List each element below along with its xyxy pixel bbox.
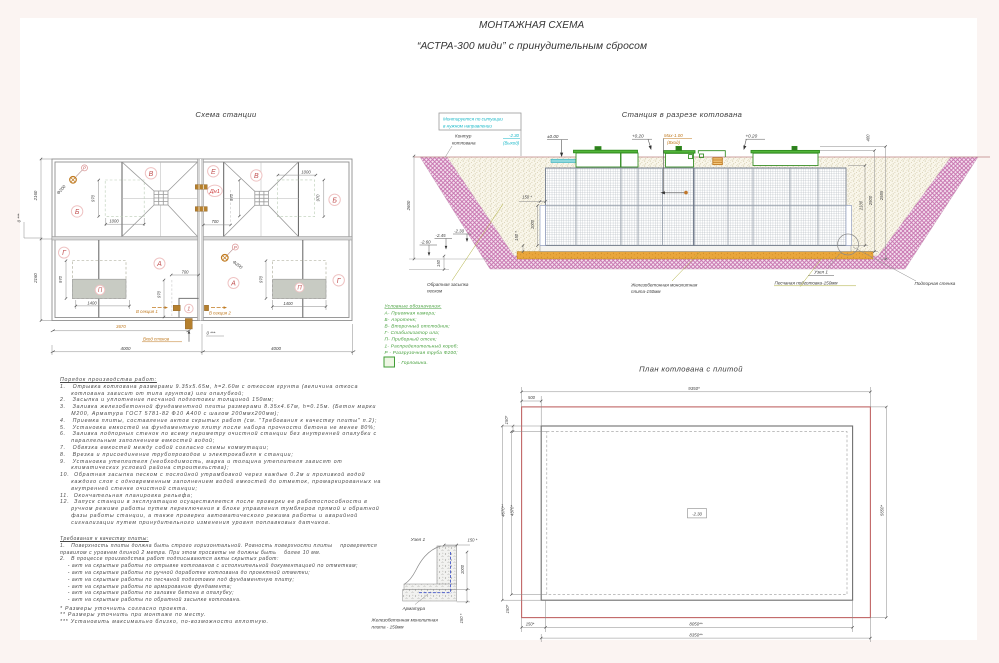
svg-text:Схема станции: Схема станции: [195, 110, 257, 119]
svg-text:Узел 1: Узел 1: [814, 270, 828, 275]
svg-text:Обратная засыпка: Обратная засыпка: [427, 282, 469, 287]
svg-text:Арматура: Арматура: [402, 606, 426, 611]
svg-text:0 ***: 0 ***: [17, 213, 22, 222]
svg-text:+0.20: +0.20: [632, 134, 644, 139]
svg-text:8350**: 8350**: [689, 632, 702, 637]
svg-text:котлована: котлована: [452, 141, 476, 146]
svg-text:В- Вторичный отстойник;: В- Вторичный отстойник;: [385, 323, 451, 329]
svg-text:4670**: 4670**: [501, 504, 506, 517]
svg-text:150: 150: [436, 259, 441, 267]
svg-text:150 *: 150 *: [522, 194, 532, 199]
svg-text:Монтируется по ситуации: Монтируется по ситуации: [443, 117, 503, 122]
svg-text:2100: 2100: [858, 200, 863, 211]
svg-text:2160: 2160: [33, 273, 38, 284]
svg-text:Условные обозначения:: Условные обозначения:: [385, 304, 442, 309]
svg-text:970: 970: [58, 275, 63, 283]
svg-text:0 ***: 0 ***: [207, 331, 216, 336]
svg-text:А- Приемная камера;: А- Приемная камера;: [384, 310, 437, 315]
svg-text:+0.20: +0.20: [746, 134, 758, 139]
svg-text:970: 970: [229, 193, 234, 201]
svg-text:2585: 2585: [879, 190, 884, 201]
svg-text:9350*: 9350*: [688, 386, 700, 391]
svg-text:±0.00: ±0.00: [547, 134, 559, 139]
svg-text:Дн1: Дн1: [209, 189, 220, 195]
svg-text:-2.30: -2.30: [692, 511, 703, 516]
svg-text:Железобетонная монолитная: Железобетонная монолитная: [630, 282, 698, 287]
svg-text:В секция 2: В секция 2: [209, 311, 231, 316]
svg-text:В: В: [149, 171, 154, 178]
svg-text:-2.60: -2.60: [421, 240, 432, 245]
svg-text:Р - Разгрузочная труба Ф200;: Р - Разгрузочная труба Ф200;: [385, 350, 459, 355]
svg-text:5650*: 5650*: [880, 505, 885, 516]
svg-text:Б- Аэротенк;: Б- Аэротенк;: [385, 317, 418, 322]
svg-text:Узел 1: Узел 1: [411, 537, 426, 543]
svg-text:1400: 1400: [283, 301, 293, 306]
svg-text:2160: 2160: [33, 190, 38, 201]
svg-text:8050**: 8050**: [689, 622, 702, 627]
svg-text:Железобетонная монолитная: Железобетонная монолитная: [371, 618, 439, 623]
svg-text:(Вход): (Вход): [667, 140, 681, 145]
svg-text:1000: 1000: [109, 219, 119, 224]
svg-text:2600: 2600: [406, 200, 411, 211]
svg-text:П: П: [297, 286, 302, 292]
svg-text:150 *: 150 *: [459, 613, 464, 623]
svg-text:Г- Стабилизатор ила;: Г- Стабилизатор ила;: [385, 330, 440, 335]
svg-text:1400: 1400: [87, 300, 97, 305]
svg-text:970: 970: [315, 194, 320, 202]
svg-text:План котлована с плитой: План котлована с плитой: [639, 365, 743, 374]
svg-text:-2.30: -2.30: [509, 133, 520, 138]
svg-text:1000: 1000: [530, 219, 535, 229]
svg-text:500: 500: [528, 395, 536, 400]
svg-text:(Выход): (Выход): [503, 141, 520, 146]
svg-text:Р: Р: [234, 245, 237, 250]
svg-text:150 *: 150 *: [514, 231, 519, 241]
svg-text:В: В: [254, 173, 259, 180]
svg-text:-2.45: -2.45: [436, 233, 447, 238]
svg-text:4370*: 4370*: [510, 505, 515, 516]
svg-text:Р: Р: [83, 166, 86, 171]
svg-text:П: П: [98, 288, 103, 294]
svg-text:150*: 150*: [526, 622, 535, 627]
svg-text:1- Распределительный короб;: 1- Распределительный короб;: [385, 342, 459, 348]
svg-text:в нужном направлении: в нужном направлении: [443, 124, 492, 129]
svg-text:П- Приборный отсек;: П- Приборный отсек;: [385, 336, 438, 342]
svg-text:Мах-1.00: Мах-1.00: [664, 133, 683, 138]
svg-text:Е: Е: [211, 169, 216, 176]
svg-text:1000: 1000: [301, 169, 311, 174]
svg-text:1000: 1000: [460, 564, 465, 574]
svg-text:А: А: [230, 281, 236, 288]
svg-text:970: 970: [91, 194, 96, 202]
svg-text:150*: 150*: [504, 415, 509, 424]
svg-text:700: 700: [212, 219, 220, 224]
svg-text:Станция в разрезе котлована: Станция в разрезе котлована: [622, 110, 743, 119]
svg-text:Б: Б: [332, 197, 337, 204]
svg-text:А: А: [156, 261, 162, 268]
svg-text:2500: 2500: [868, 195, 873, 206]
svg-text:Вход стоков: Вход стоков: [143, 336, 170, 341]
svg-text:плита-150мм: плита-150мм: [631, 289, 661, 294]
svg-text:песком: песком: [427, 289, 443, 294]
svg-text:4000: 4000: [120, 346, 131, 351]
svg-text:3670: 3670: [116, 324, 126, 329]
svg-text:700: 700: [182, 269, 190, 274]
svg-text:-2.30: -2.30: [454, 229, 465, 234]
svg-text:150*: 150*: [505, 604, 510, 613]
svg-text:Подпорная стенка: Подпорная стенка: [915, 281, 956, 286]
svg-text:- Горловина.: - Горловина.: [398, 360, 428, 365]
svg-text:Б: Б: [75, 209, 80, 216]
svg-text:4000: 4000: [271, 346, 282, 351]
svg-text:Песчаная подготовка-150мм: Песчаная подготовка-150мм: [775, 280, 839, 285]
svg-text:Контур: Контур: [455, 134, 472, 139]
svg-text:970: 970: [157, 290, 162, 298]
svg-text:плита - 150мм: плита - 150мм: [372, 625, 405, 630]
svg-text:400: 400: [865, 134, 870, 142]
svg-text:970: 970: [259, 275, 264, 283]
svg-text:150 *: 150 *: [468, 538, 478, 543]
svg-text:1: 1: [187, 307, 190, 313]
svg-text:В секция 1: В секция 1: [136, 309, 158, 314]
